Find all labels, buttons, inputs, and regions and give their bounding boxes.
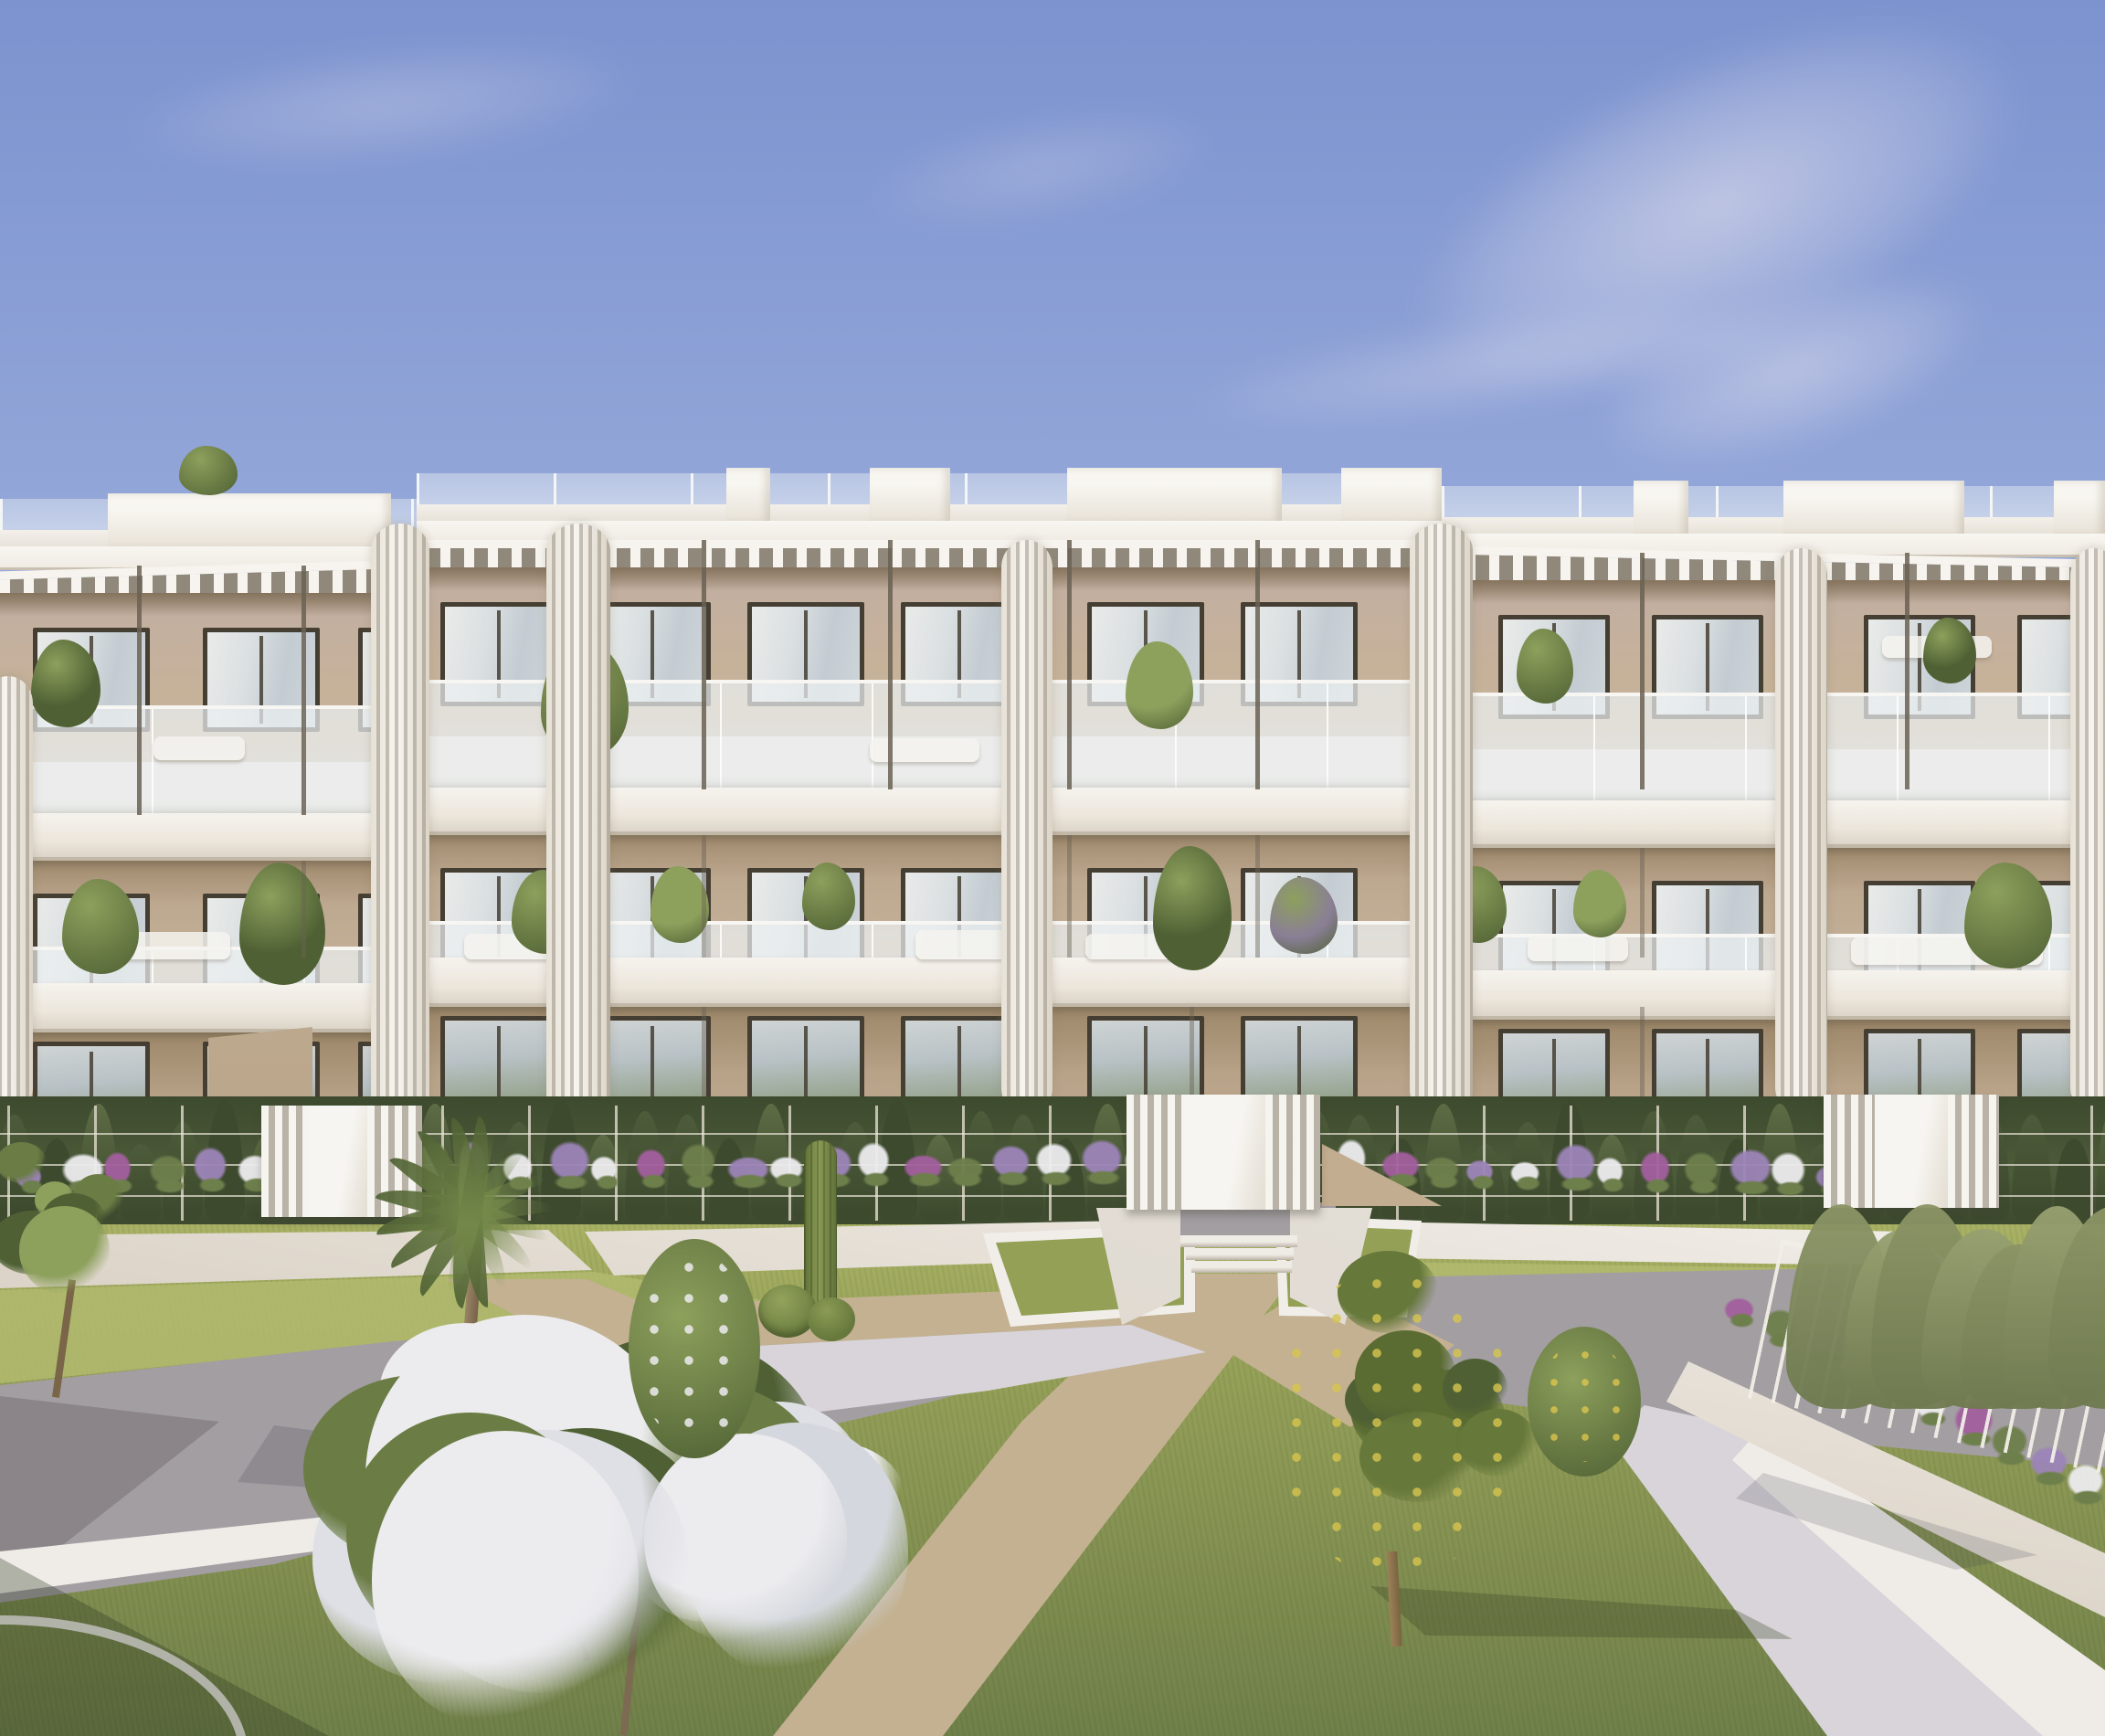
lemon-fruits: [1276, 1266, 1514, 1580]
tree-trunk: [52, 1279, 76, 1398]
gate-solid-panel: [1185, 1095, 1265, 1210]
white-flowering-tree: [301, 1286, 941, 1736]
garden: [0, 0, 2105, 1736]
bush-flowers: [637, 1252, 753, 1445]
lemon-tree: [1253, 1250, 1537, 1652]
entrance-step: [1180, 1235, 1297, 1247]
foliage-blob: [372, 1431, 640, 1730]
flower-foliage: [1424, 1171, 1464, 1191]
flower-foliage: [1684, 1177, 1723, 1197]
render-viewport: [0, 0, 2105, 1736]
flower-foliage: [1598, 1175, 1629, 1195]
small-olive-tree: [0, 1124, 155, 1398]
flower-foliage: [947, 1170, 988, 1190]
bush-flowers: [1539, 1341, 1629, 1461]
flower-foliage: [681, 1171, 720, 1191]
foliage-blob: [0, 1142, 47, 1183]
gate-slat-panel: [1265, 1095, 1320, 1210]
flower-foliage: [991, 1169, 1034, 1189]
foliage-blob: [19, 1206, 111, 1295]
main-entrance-gate: [1127, 1095, 1320, 1210]
flower-foliage: [1511, 1173, 1545, 1193]
flower-foliage: [149, 1176, 190, 1196]
yellow-flower-bush: [1528, 1327, 1641, 1477]
cypress-cluster: [1786, 1153, 2105, 1409]
flower-foliage: [1035, 1169, 1077, 1189]
gate-slat-panel: [1127, 1095, 1185, 1210]
white-flower-shrub: [629, 1239, 760, 1458]
